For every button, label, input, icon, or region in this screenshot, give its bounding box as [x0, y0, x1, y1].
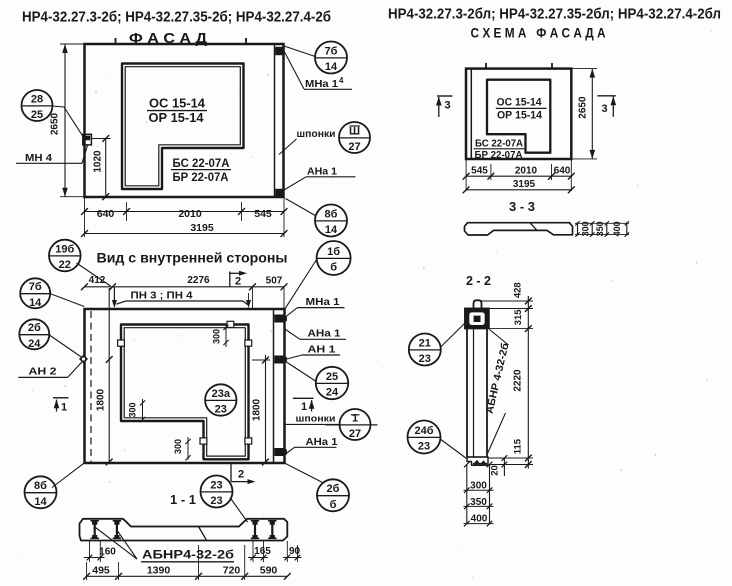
- svg-text:МНа 1: МНа 1: [305, 78, 338, 90]
- svg-text:2650: 2650: [50, 112, 61, 135]
- svg-text:28: 28: [31, 93, 43, 105]
- svg-text:2276: 2276: [187, 275, 210, 286]
- svg-text:2: 2: [238, 468, 244, 480]
- svg-text:шпонки: шпонки: [297, 129, 336, 140]
- svg-text:АБНР4-32-2б: АБНР4-32-2б: [142, 550, 234, 562]
- svg-text:350: 350: [470, 497, 487, 508]
- svg-text:2010: 2010: [178, 208, 202, 220]
- svg-text:23: 23: [210, 479, 222, 491]
- svg-text:640: 640: [97, 208, 115, 220]
- svg-text:ОР 15-14: ОР 15-14: [497, 110, 543, 122]
- svg-text:ОР 15-14: ОР 15-14: [149, 111, 204, 125]
- svg-text:23: 23: [215, 404, 227, 416]
- svg-text:590: 590: [260, 564, 278, 576]
- svg-text:3 - 3: 3 - 3: [509, 200, 535, 214]
- svg-text:БР 22-07А: БР 22-07А: [173, 172, 229, 184]
- svg-text:545: 545: [254, 208, 272, 220]
- svg-text:160: 160: [99, 547, 116, 558]
- svg-text:2 - 2: 2 - 2: [466, 273, 491, 288]
- svg-text:Ш: Ш: [349, 125, 360, 137]
- svg-text:АН 1: АН 1: [308, 344, 336, 356]
- svg-text:507: 507: [266, 276, 283, 287]
- svg-text:2220: 2220: [512, 369, 523, 392]
- svg-text:14: 14: [29, 297, 42, 309]
- svg-text:АНа 1: АНа 1: [308, 328, 341, 340]
- svg-text:3195: 3195: [513, 179, 536, 190]
- svg-text:АНа 1: АНа 1: [306, 436, 338, 448]
- svg-text:14: 14: [34, 496, 47, 508]
- svg-text:1020: 1020: [92, 150, 103, 173]
- svg-text:545: 545: [471, 165, 488, 176]
- svg-text:24: 24: [28, 338, 41, 350]
- svg-text:3: 3: [601, 103, 607, 115]
- svg-text:25: 25: [31, 109, 43, 121]
- svg-text:21: 21: [419, 337, 431, 349]
- svg-text:7б: 7б: [325, 45, 338, 57]
- svg-text:ОС 15-14: ОС 15-14: [149, 97, 205, 111]
- svg-text:2010: 2010: [515, 165, 538, 176]
- svg-text:ОС 15-14: ОС 15-14: [497, 96, 543, 108]
- svg-text:115: 115: [512, 438, 523, 454]
- svg-text:1800: 1800: [96, 388, 107, 411]
- svg-text:1: 1: [301, 401, 307, 413]
- svg-text:23: 23: [210, 495, 222, 507]
- svg-text:22: 22: [59, 259, 71, 271]
- svg-text:1: 1: [352, 412, 358, 424]
- svg-text:8б: 8б: [34, 480, 47, 492]
- svg-text:Вид с внутренней стороны: Вид с внутренней стороны: [97, 251, 288, 266]
- svg-text:1: 1: [61, 402, 67, 414]
- svg-text:25: 25: [326, 371, 338, 383]
- svg-text:640: 640: [554, 165, 571, 176]
- svg-text:27: 27: [349, 428, 361, 440]
- svg-text:14: 14: [325, 224, 338, 236]
- svg-text:23а: 23а: [212, 388, 231, 400]
- svg-text:б: б: [330, 262, 337, 274]
- svg-text:300: 300: [212, 329, 222, 344]
- svg-text:23: 23: [418, 441, 430, 453]
- svg-text:2б: 2б: [28, 322, 41, 334]
- svg-text:НР4-32.27.3-2б; НР4-32.27.35-2: НР4-32.27.3-2б; НР4-32.27.35-2б; НР4-32.…: [22, 9, 331, 26]
- svg-text:БС 22-07А: БС 22-07А: [475, 139, 523, 150]
- svg-text:МНа 1: МНа 1: [306, 296, 340, 308]
- svg-text:165: 165: [254, 546, 271, 557]
- svg-text:б: б: [330, 499, 337, 511]
- svg-text:400: 400: [471, 514, 488, 525]
- svg-text:3: 3: [444, 100, 450, 112]
- svg-text:300: 300: [470, 481, 487, 492]
- svg-text:4: 4: [339, 76, 344, 85]
- svg-text:720: 720: [223, 564, 241, 576]
- svg-text:НР4-32.27.3-2бл; НР4-32.27.35-: НР4-32.27.3-2бл; НР4-32.27.35-2бл; НР4-3…: [388, 7, 721, 23]
- svg-text:2650: 2650: [577, 96, 588, 119]
- svg-text:ПН 3 ; ПН 4: ПН 3 ; ПН 4: [131, 291, 193, 302]
- svg-text:27: 27: [348, 141, 360, 153]
- svg-text:1390: 1390: [147, 564, 171, 576]
- svg-text:495: 495: [92, 564, 110, 576]
- svg-text:3195: 3195: [190, 222, 214, 234]
- svg-text:1 - 1: 1 - 1: [170, 493, 196, 507]
- svg-text:2: 2: [235, 276, 241, 288]
- svg-text:7б: 7б: [29, 281, 42, 293]
- svg-text:8б: 8б: [325, 208, 338, 220]
- svg-text:23: 23: [419, 353, 431, 365]
- svg-text:1б: 1б: [327, 246, 340, 258]
- svg-text:24б: 24б: [414, 425, 433, 437]
- svg-text:428: 428: [513, 282, 524, 298]
- svg-text:БР 22-07А: БР 22-07А: [475, 150, 523, 161]
- svg-text:300: 300: [173, 439, 183, 454]
- svg-text:400: 400: [612, 221, 622, 236]
- svg-text:19б: 19б: [55, 243, 74, 255]
- svg-text:315: 315: [513, 309, 524, 326]
- svg-text:БС 22-07А: БС 22-07А: [173, 158, 230, 170]
- svg-text:300: 300: [580, 221, 590, 236]
- svg-text:2б: 2б: [327, 483, 340, 495]
- svg-text:шпонки: шпонки: [296, 414, 336, 425]
- svg-text:АНа 1: АНа 1: [307, 166, 337, 178]
- svg-text:300: 300: [127, 402, 137, 417]
- svg-text:24: 24: [326, 387, 339, 399]
- svg-text:С Х Е М А Ф А С А Д А: С Х Е М А Ф А С А Д А: [471, 25, 606, 41]
- svg-text:АН 2: АН 2: [29, 366, 57, 378]
- svg-text:14: 14: [325, 61, 338, 73]
- svg-text:350: 350: [595, 221, 605, 236]
- svg-text:20: 20: [490, 465, 501, 476]
- svg-text:МН 4: МН 4: [25, 152, 52, 164]
- svg-text:1800: 1800: [251, 398, 262, 421]
